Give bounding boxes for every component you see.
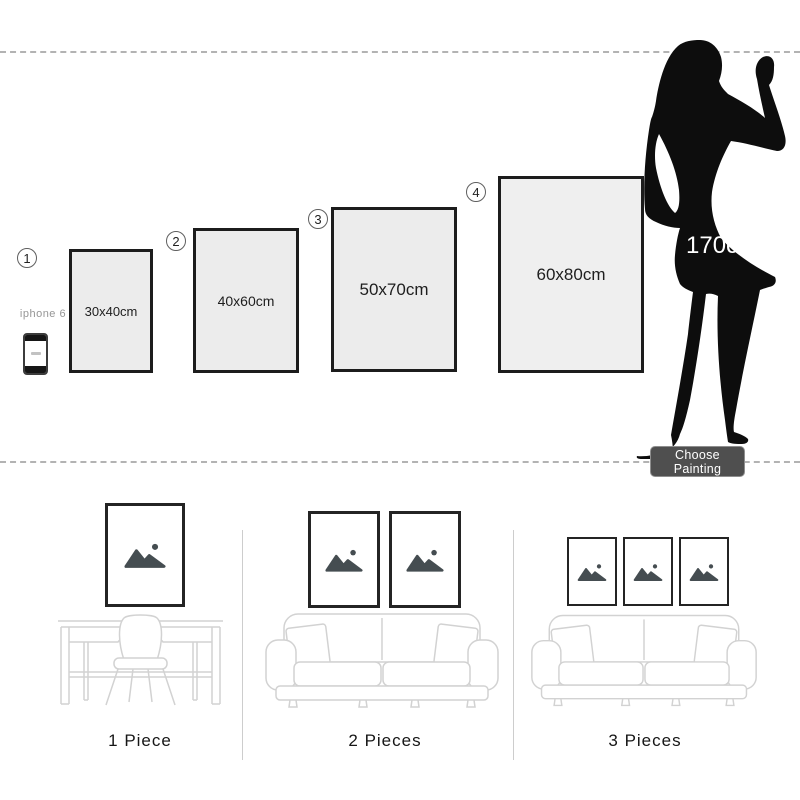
size-option-1-number: 1 — [17, 248, 37, 268]
wall-art-frame-3piece-c — [679, 537, 729, 606]
size-frame-50x70-label: 50x70cm — [360, 280, 429, 300]
size-option-2-number: 2 — [166, 231, 186, 251]
sofa-illustration — [528, 610, 760, 710]
section-divider-2 — [513, 530, 514, 760]
iphone-screen-mark — [31, 352, 41, 355]
choose-painting-button[interactable]: Choose Painting — [650, 446, 745, 477]
size-option-4-number: 4 — [466, 182, 486, 202]
image-placeholder-icon — [577, 562, 607, 582]
size-frame-30x40: 30x40cm — [69, 249, 153, 373]
size-frame-60x80: 60x80cm — [498, 176, 644, 373]
image-placeholder-icon — [124, 540, 166, 570]
iphone-icon — [23, 333, 48, 375]
wall-art-frame-3piece-b — [623, 537, 673, 606]
wall-art-frame-2piece-b — [389, 511, 461, 608]
arrangement-label-3pieces: 3 Pieces — [545, 731, 745, 751]
image-placeholder-icon — [406, 547, 444, 573]
iphone-bottom-bezel — [25, 366, 46, 373]
person-height-label: 170cm — [686, 232, 758, 260]
arrangement-label-2pieces: 2 Pieces — [285, 731, 485, 751]
wall-art-frame-2piece-a — [308, 511, 380, 608]
wall-art-frame-3piece-a — [567, 537, 617, 606]
size-frame-30x40-label: 30x40cm — [85, 304, 138, 319]
size-frame-40x60: 40x60cm — [193, 228, 299, 373]
size-guide-image: 1 2 3 4 30x40cm 40x60cm 50x70cm 60x80cm … — [0, 0, 800, 800]
size-frame-40x60-label: 40x60cm — [218, 293, 275, 309]
wall-art-frame-1piece — [105, 503, 185, 607]
image-placeholder-icon — [633, 562, 663, 582]
section-divider-1 — [242, 530, 243, 760]
image-placeholder-icon — [325, 547, 363, 573]
size-option-3-number: 3 — [308, 209, 328, 229]
iphone-screen — [25, 341, 46, 366]
sofa-illustration — [262, 610, 502, 710]
iphone-reference-label: iphone 6 — [14, 308, 72, 320]
size-frame-50x70: 50x70cm — [331, 207, 457, 372]
desk-chair-illustration — [58, 612, 223, 707]
image-placeholder-icon — [689, 562, 719, 582]
arrangement-label-1piece: 1 Piece — [40, 731, 240, 751]
size-frame-60x80-label: 60x80cm — [537, 265, 606, 285]
